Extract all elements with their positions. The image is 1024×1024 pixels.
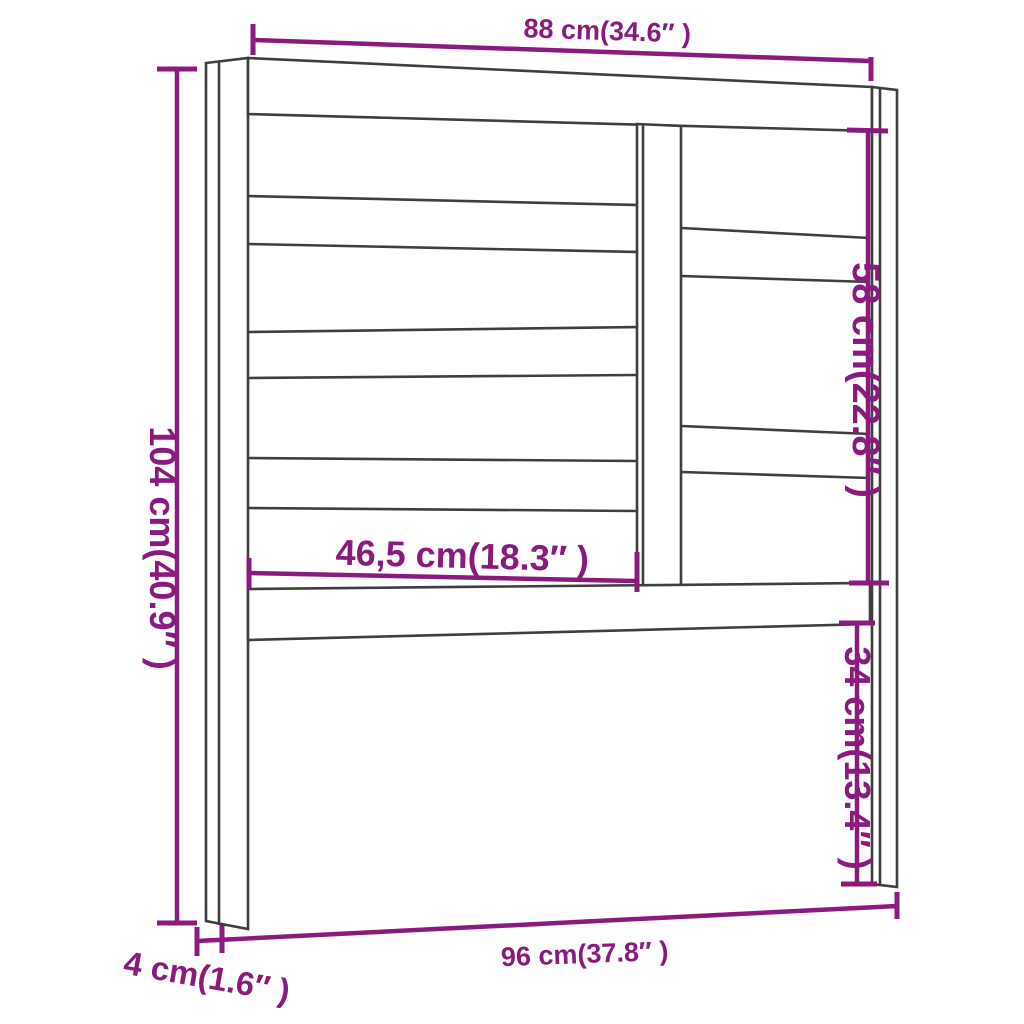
diagram-canvas: 88 cm(34.6″ ) 104 cm(40.9″ ) 58 cm(22.8″… (0, 0, 1024, 1024)
dimension-lower-right-height: 34 cm(13.4″ ) (837, 623, 878, 884)
dim-lower-right-label: 34 cm(13.4″ ) (837, 646, 878, 869)
left-slat2-bottom-line (248, 327, 637, 332)
dim-upper-right-tick-top (847, 130, 888, 131)
dim-overall-height-label: 104 cm(40.9″ ) (142, 426, 183, 669)
dim-top-width-label: 88 cm(34.6″ ) (523, 13, 691, 49)
bottom-rail (248, 583, 870, 640)
left-slat3-top-line (248, 375, 637, 378)
dimension-inner-slat-width: 46,5 cm(18.3″ ) (249, 532, 637, 592)
left-slat2-top-line (248, 244, 637, 252)
headboard-dimension-diagram: 88 cm(34.6″ ) 104 cm(40.9″ ) 58 cm(22.8″… (0, 0, 1024, 1024)
dimension-overall-height: 104 cm(40.9″ ) (142, 69, 197, 923)
left-slat3-bottom-line (248, 458, 637, 461)
dim-upper-right-label: 58 cm(22.8″ ) (844, 262, 886, 498)
dim-bottom-width-label: 96 cm(37.8″ ) (500, 936, 669, 972)
dim-leg-depth-label: 4 cm(1.6″ ) (121, 944, 293, 1010)
left-slat1-bottom-line (248, 196, 637, 205)
left-slat4-top-line (248, 508, 637, 511)
left-post (206, 58, 248, 929)
right-slat2-top-line (681, 426, 870, 434)
top-rail (248, 58, 872, 131)
right-slat1-bottom-line (681, 276, 870, 282)
headboard-drawing (206, 58, 897, 929)
dim-inner-slat-label: 46,5 cm(18.3″ ) (335, 532, 589, 580)
right-slat1-top-line (681, 228, 870, 238)
right-slat2-bottom-line (681, 472, 870, 478)
dim-bottom-line (197, 906, 897, 941)
